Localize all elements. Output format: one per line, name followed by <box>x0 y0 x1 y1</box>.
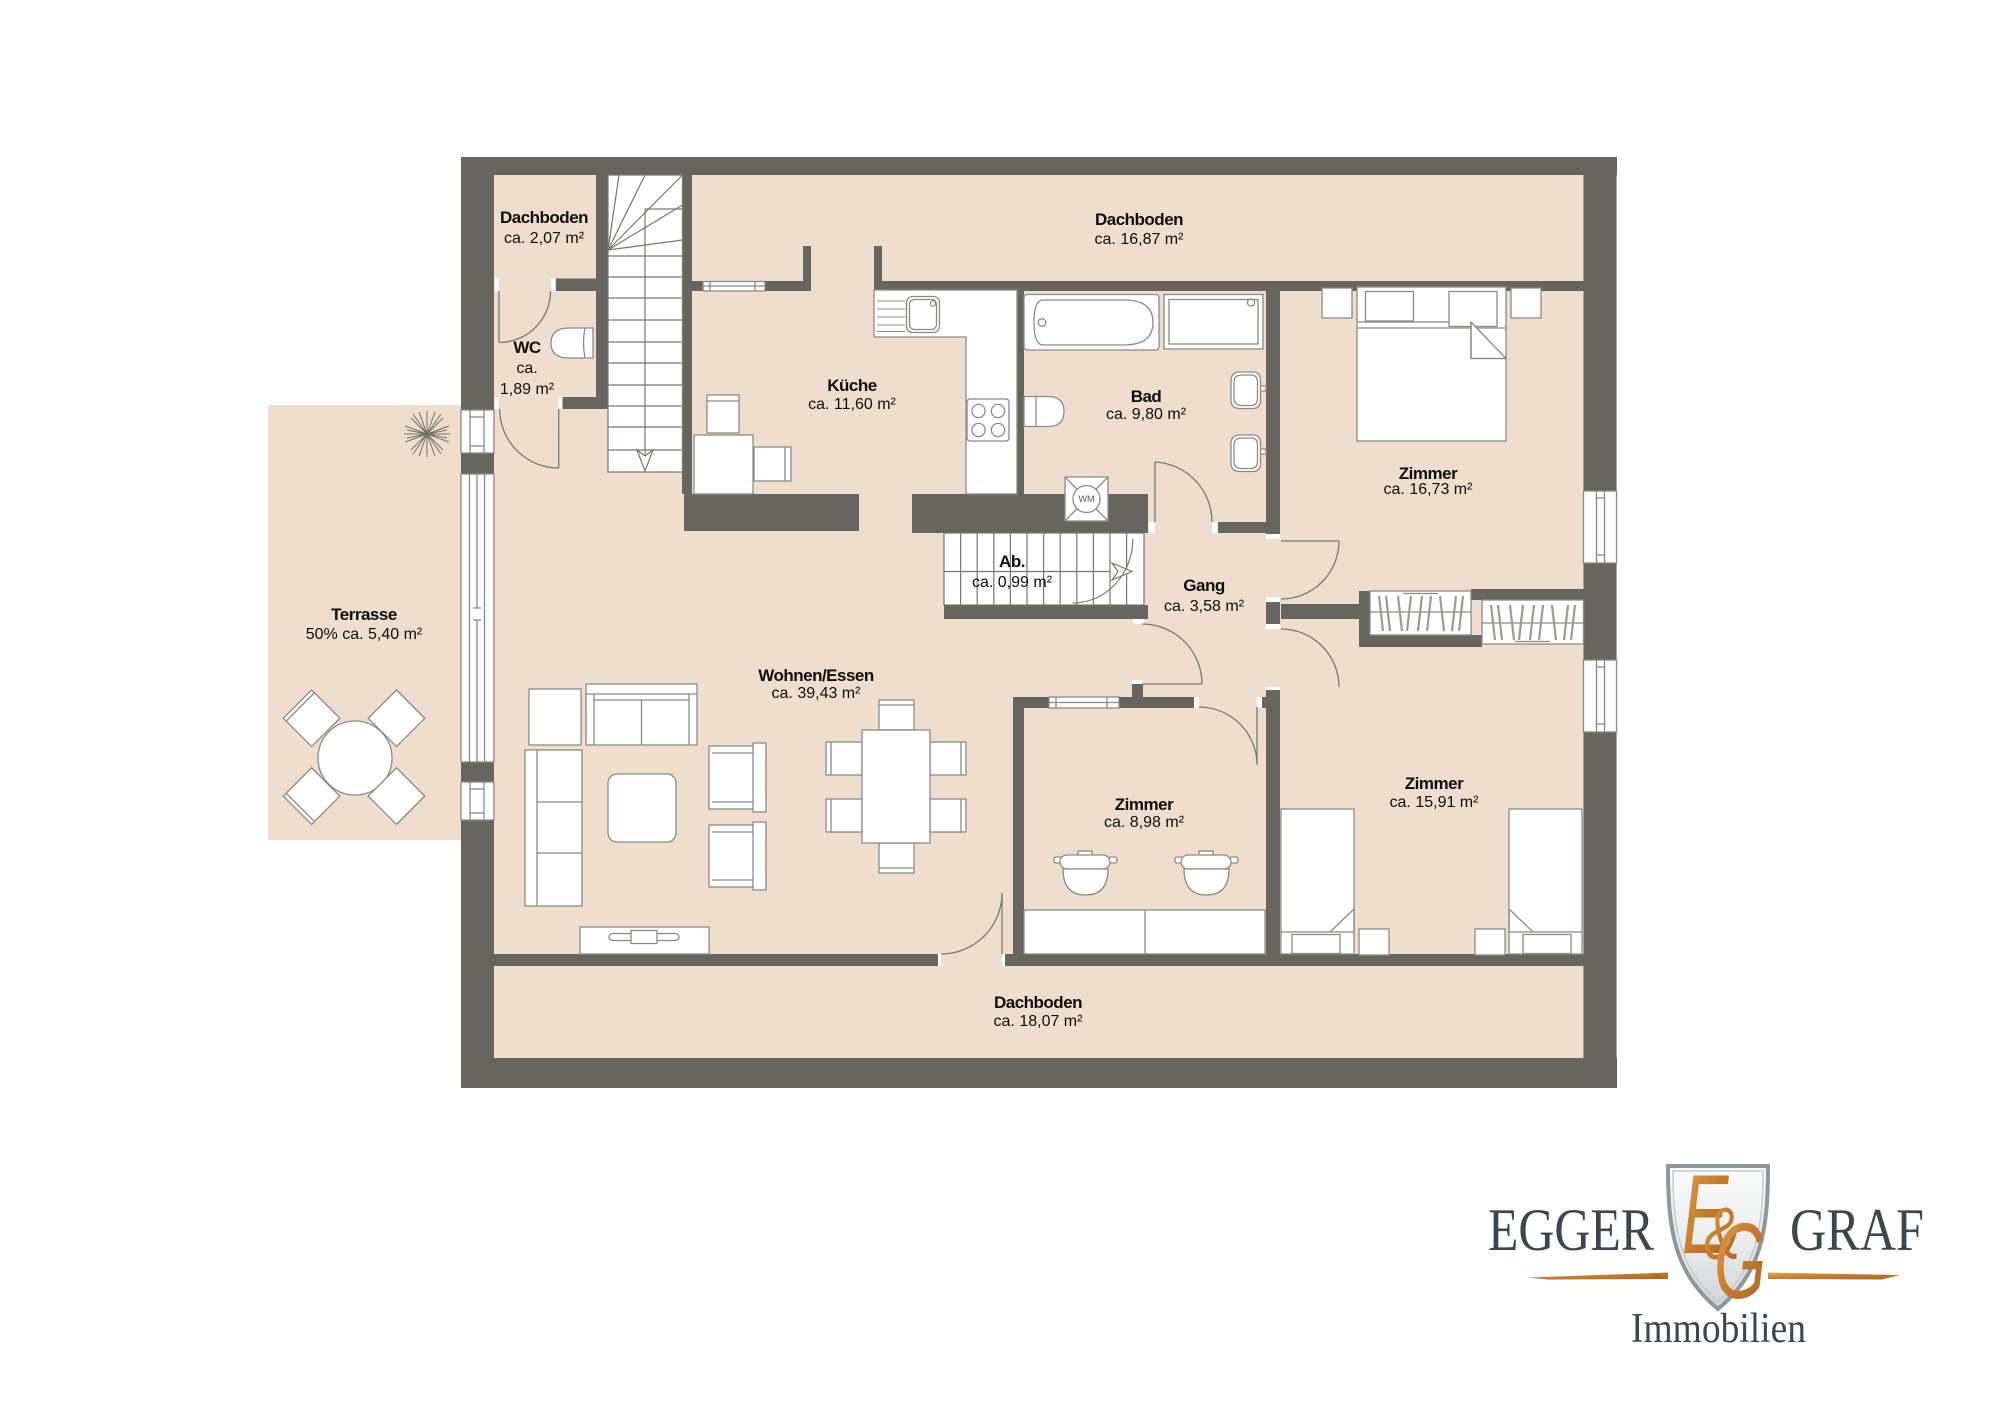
svg-text:ca. 16,73 m²: ca. 16,73 m² <box>1384 481 1474 498</box>
svg-text:Zimmer: Zimmer <box>1405 774 1464 793</box>
svg-text:Dachboden: Dachboden <box>500 208 588 227</box>
svg-text:ca. 2,07 m²: ca. 2,07 m² <box>504 230 585 247</box>
svg-text:Zimmer: Zimmer <box>1115 795 1174 814</box>
svg-text:Küche: Küche <box>827 376 877 395</box>
svg-text:Wohnen/Essen: Wohnen/Essen <box>758 666 874 685</box>
svg-text:Ab.: Ab. <box>999 552 1025 571</box>
svg-text:ca. 3,58 m²: ca. 3,58 m² <box>1164 598 1245 615</box>
svg-text:ca. 9,80 m²: ca. 9,80 m² <box>1106 406 1187 423</box>
svg-text:Dachboden: Dachboden <box>1095 210 1183 229</box>
svg-text:EGGER: EGGER <box>1488 1197 1654 1263</box>
svg-text:ca. 11,60 m²: ca. 11,60 m² <box>808 396 896 413</box>
svg-text:WM: WM <box>1079 494 1095 504</box>
svg-text:Dachboden: Dachboden <box>994 993 1082 1012</box>
svg-text:ca. 39,43 m²: ca. 39,43 m² <box>772 685 862 702</box>
svg-text:Immobilien: Immobilien <box>1631 1306 1806 1352</box>
svg-text:ca. 18,07 m²: ca. 18,07 m² <box>994 1013 1084 1030</box>
svg-text:G: G <box>1714 1202 1766 1322</box>
svg-text:ca. 8,98 m²: ca. 8,98 m² <box>1104 814 1185 831</box>
svg-text:ca. 15,91 m²: ca. 15,91 m² <box>1390 794 1480 811</box>
svg-text:ca. 16,87 m²: ca. 16,87 m² <box>1095 231 1185 248</box>
svg-text:Gang: Gang <box>1183 576 1225 595</box>
svg-text:GRAF: GRAF <box>1790 1197 1924 1263</box>
svg-text:50% ca. 5,40 m²: 50% ca. 5,40 m² <box>306 626 423 643</box>
svg-text:1,89 m²: 1,89 m² <box>500 381 555 398</box>
svg-text:Terrasse: Terrasse <box>331 605 397 624</box>
svg-text:ca.: ca. <box>516 360 537 377</box>
svg-text:Bad: Bad <box>1131 387 1162 406</box>
svg-text:WC: WC <box>513 338 541 357</box>
svg-text:ca. 0,99 m²: ca. 0,99 m² <box>972 574 1053 591</box>
